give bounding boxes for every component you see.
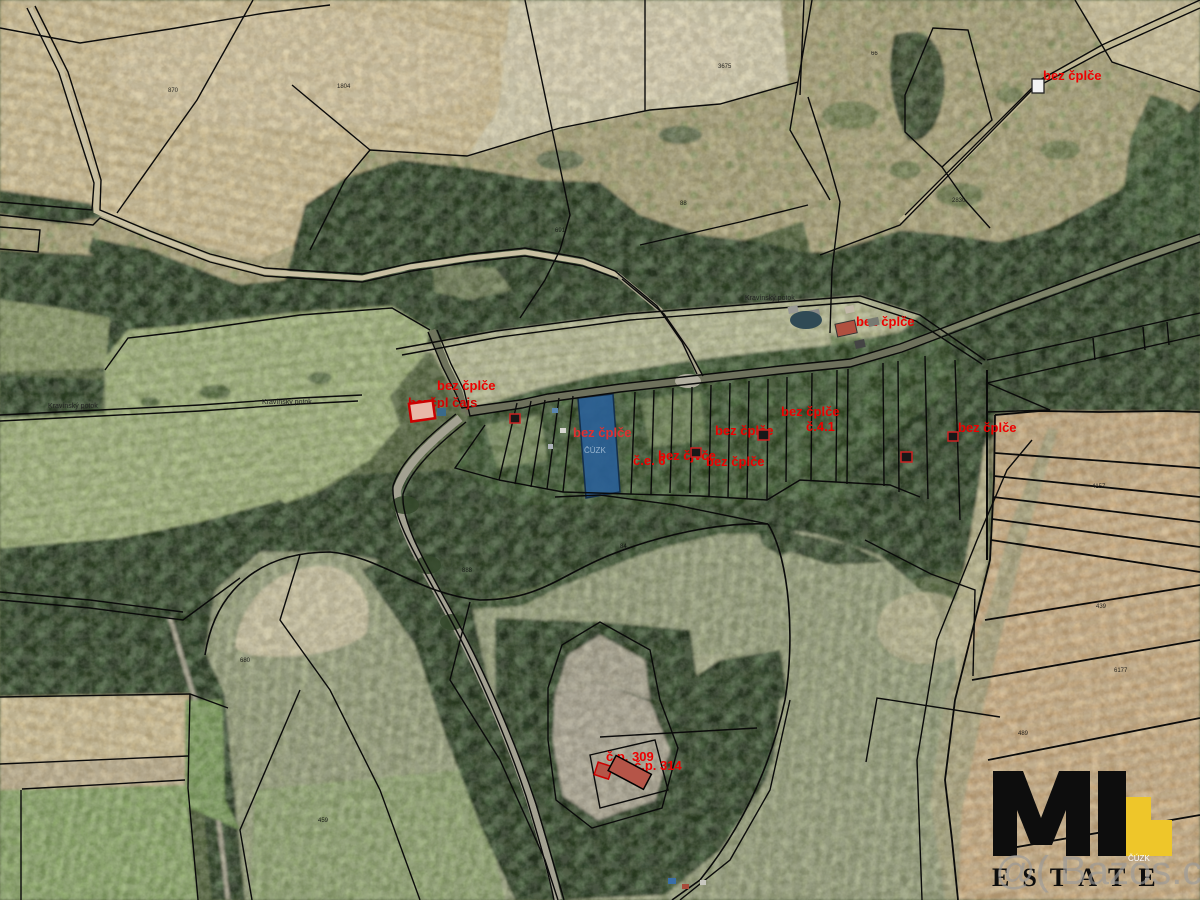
svg-text:ČÚZK: ČÚZK xyxy=(584,446,606,455)
svg-text:2830: 2830 xyxy=(952,198,966,204)
svg-text:870: 870 xyxy=(168,88,179,94)
svg-text:888: 888 xyxy=(462,568,473,574)
svg-text:bez čplče: bez čplče xyxy=(706,454,765,469)
svg-text:489: 489 xyxy=(1018,731,1029,737)
svg-text:3675: 3675 xyxy=(718,64,732,70)
svg-text:Kravínský potok: Kravínský potok xyxy=(745,295,795,302)
svg-text:691: 691 xyxy=(555,228,566,234)
svg-text:680: 680 xyxy=(240,658,251,664)
svg-text:@( Bazos.cz: @( Bazos.cz xyxy=(995,849,1200,893)
svg-text:č.4.1: č.4.1 xyxy=(806,419,835,434)
svg-text:bez čplče: bez čplče xyxy=(958,420,1017,435)
svg-text:459: 459 xyxy=(318,818,329,824)
svg-text:bez čplče: bez čplče xyxy=(573,425,632,440)
svg-text:bez čplče: bez čplče xyxy=(437,378,496,393)
svg-text:bez čplče: bez čplče xyxy=(1043,68,1102,83)
svg-text:Kravínský potok: Kravínský potok xyxy=(262,399,312,406)
svg-text:66: 66 xyxy=(871,51,878,57)
svg-text:bez čplče: bez čplče xyxy=(781,404,840,419)
svg-text:88: 88 xyxy=(680,201,687,207)
svg-text:6177: 6177 xyxy=(1114,668,1128,674)
svg-text:439: 439 xyxy=(1096,604,1107,610)
svg-text:84: 84 xyxy=(620,544,627,550)
svg-text:Kravínský potok: Kravínský potok xyxy=(48,403,98,410)
svg-text:1804: 1804 xyxy=(337,84,351,90)
svg-text:bez čplče: bez čplče xyxy=(856,314,915,329)
svg-text:4157: 4157 xyxy=(1092,484,1106,490)
